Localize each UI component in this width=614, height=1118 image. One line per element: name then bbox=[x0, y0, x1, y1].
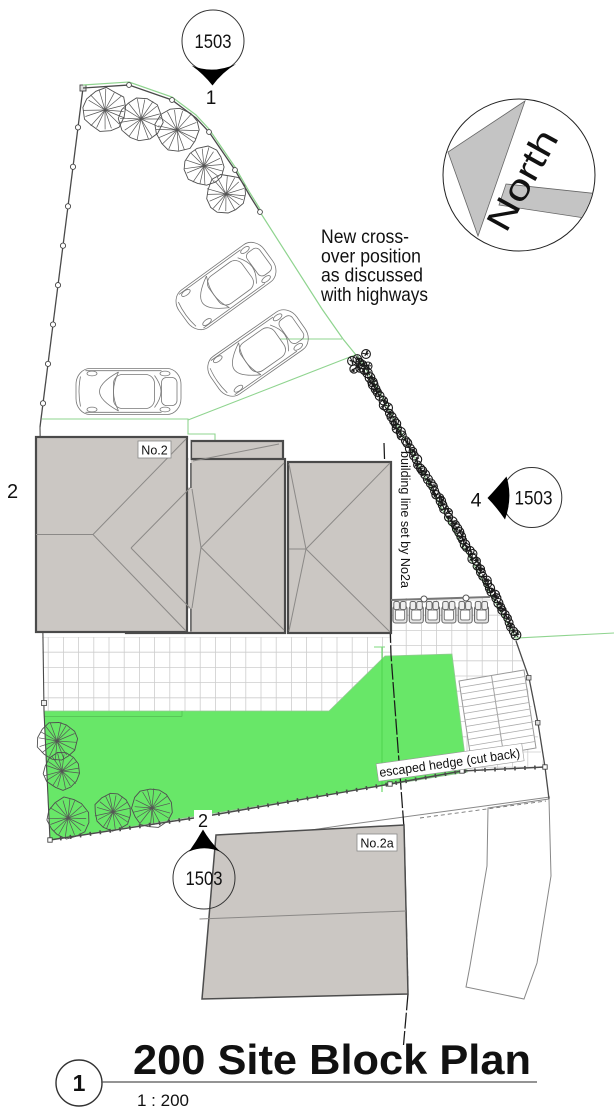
svg-text:4: 4 bbox=[471, 490, 482, 512]
svg-text:1503: 1503 bbox=[515, 489, 553, 510]
svg-text:No.2a: No.2a bbox=[360, 837, 393, 851]
svg-text:2: 2 bbox=[7, 481, 18, 503]
svg-text:200 Site Block Plan: 200 Site Block Plan bbox=[133, 1036, 531, 1083]
svg-text:1 : 200: 1 : 200 bbox=[137, 1091, 189, 1110]
svg-text:2: 2 bbox=[198, 811, 208, 831]
svg-text:with highways: with highways bbox=[320, 284, 428, 306]
svg-text:building line set by No2a: building line set by No2a bbox=[398, 451, 413, 589]
svg-text:No.2: No.2 bbox=[141, 444, 167, 458]
svg-text:1503: 1503 bbox=[186, 869, 223, 890]
svg-text:1503: 1503 bbox=[195, 32, 232, 53]
svg-text:1: 1 bbox=[206, 88, 217, 109]
svg-text:1: 1 bbox=[73, 1070, 86, 1096]
